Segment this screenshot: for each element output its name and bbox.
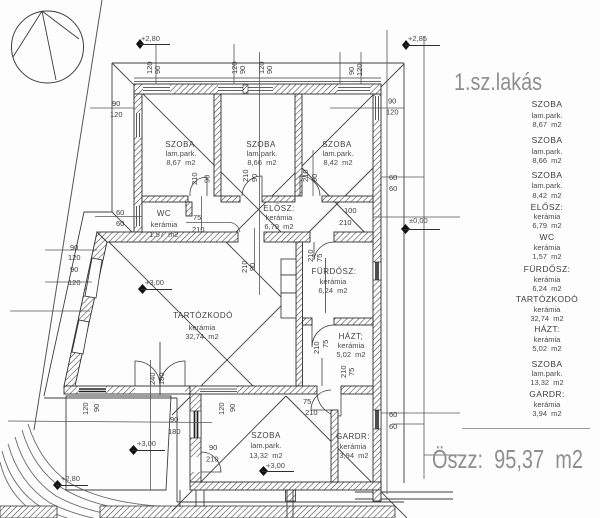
svg-text:+3,00: +3,00 bbox=[137, 439, 156, 448]
svg-text:90: 90 bbox=[388, 97, 396, 106]
svg-text:FÜRDŐSZ:: FÜRDŐSZ: bbox=[524, 264, 571, 274]
svg-text:120: 120 bbox=[355, 63, 364, 76]
svg-text:TARTÓZKODÓ: TARTÓZKODÓ bbox=[516, 294, 578, 304]
svg-text:8,66 m2: 8,66 m2 bbox=[247, 158, 276, 167]
svg-text:±0,00: ±0,00 bbox=[409, 216, 428, 225]
svg-text:75: 75 bbox=[303, 397, 311, 406]
svg-text:90: 90 bbox=[203, 175, 212, 183]
svg-text:WC: WC bbox=[540, 232, 555, 242]
svg-text:8,66 m2: 8,66 m2 bbox=[532, 156, 561, 165]
svg-text:ELŐSZ:: ELŐSZ: bbox=[531, 202, 564, 212]
svg-text:120: 120 bbox=[217, 402, 226, 415]
svg-text:kerámia: kerámia bbox=[534, 400, 562, 409]
svg-text:90: 90 bbox=[209, 443, 217, 452]
svg-text:8,67 m2: 8,67 m2 bbox=[166, 158, 195, 167]
svg-text:90: 90 bbox=[170, 415, 178, 424]
svg-text:HÁZT;: HÁZT; bbox=[339, 332, 364, 341]
svg-text:180: 180 bbox=[168, 427, 181, 436]
svg-text:lam.park.: lam.park. bbox=[532, 111, 563, 120]
svg-text:1,57 m2: 1,57 m2 bbox=[532, 252, 561, 261]
svg-text:GARDR:: GARDR: bbox=[529, 389, 564, 399]
svg-text:kerámia: kerámia bbox=[534, 212, 562, 221]
svg-text:90: 90 bbox=[70, 265, 78, 274]
svg-text:lam.park.: lam.park. bbox=[532, 369, 563, 378]
svg-text:kerámia: kerámia bbox=[151, 220, 179, 229]
svg-text:1.sz.lakás: 1.sz.lakás bbox=[454, 69, 542, 96]
svg-text:kerámia: kerámia bbox=[534, 243, 562, 252]
svg-text:ELŐSZ:: ELŐSZ: bbox=[263, 204, 294, 213]
svg-text:210: 210 bbox=[306, 249, 315, 262]
svg-text:1,57 m2: 1,57 m2 bbox=[149, 230, 178, 239]
svg-text:3,94 m2: 3,94 m2 bbox=[532, 409, 561, 418]
svg-text:180: 180 bbox=[157, 372, 166, 385]
svg-text:210: 210 bbox=[339, 365, 348, 378]
svg-text:120: 120 bbox=[68, 253, 81, 262]
svg-text:90: 90 bbox=[70, 243, 78, 252]
svg-text:lam.park.: lam.park. bbox=[166, 149, 197, 158]
svg-text:SZOBA: SZOBA bbox=[532, 359, 563, 369]
svg-text:210: 210 bbox=[301, 169, 310, 182]
svg-text:60: 60 bbox=[389, 410, 397, 419]
svg-text:GARDR:: GARDR: bbox=[336, 432, 370, 441]
svg-text:HÁZT:: HÁZT: bbox=[534, 324, 560, 334]
svg-text:90: 90 bbox=[153, 66, 162, 74]
svg-text:210: 210 bbox=[312, 341, 321, 354]
svg-text:lam.park.: lam.park. bbox=[532, 147, 563, 156]
svg-text:210: 210 bbox=[190, 172, 199, 185]
svg-text:kerámia: kerámia bbox=[534, 335, 562, 344]
svg-text:120: 120 bbox=[68, 278, 81, 287]
svg-text:90: 90 bbox=[112, 99, 120, 108]
svg-text:13,32 m2: 13,32 m2 bbox=[530, 378, 563, 387]
svg-text:90: 90 bbox=[248, 263, 257, 271]
svg-text:60: 60 bbox=[389, 173, 397, 182]
svg-text:+2,80: +2,80 bbox=[61, 474, 80, 483]
svg-text:90: 90 bbox=[228, 404, 237, 412]
svg-text:13,32 m2: 13,32 m2 bbox=[249, 451, 282, 460]
svg-text:8,42 m2: 8,42 m2 bbox=[532, 191, 561, 200]
svg-text:kerámia: kerámia bbox=[338, 341, 366, 350]
svg-text:60: 60 bbox=[389, 422, 397, 431]
svg-text:kerámia: kerámia bbox=[266, 213, 294, 222]
svg-text:90: 90 bbox=[250, 174, 259, 182]
svg-text:SZOBA: SZOBA bbox=[322, 140, 352, 149]
svg-text:75: 75 bbox=[321, 340, 330, 348]
svg-text:SZOBA: SZOBA bbox=[165, 140, 195, 149]
svg-text:+2,80: +2,80 bbox=[141, 34, 160, 43]
svg-text:3,94 m2: 3,94 m2 bbox=[339, 451, 368, 460]
svg-text:SZOBA: SZOBA bbox=[532, 135, 563, 145]
svg-text:32,74 m2: 32,74 m2 bbox=[185, 332, 218, 341]
svg-text:5,02 m2: 5,02 m2 bbox=[336, 350, 365, 359]
svg-text:210: 210 bbox=[241, 169, 250, 182]
svg-text:SZOBA: SZOBA bbox=[246, 140, 276, 149]
svg-text:TARTÓZKODÓ: TARTÓZKODÓ bbox=[173, 311, 233, 320]
svg-text:SZOBA: SZOBA bbox=[251, 431, 281, 440]
svg-text:lam.park.: lam.park. bbox=[251, 441, 282, 450]
svg-text:kerámia: kerámia bbox=[534, 275, 562, 284]
svg-text:210: 210 bbox=[206, 455, 219, 464]
svg-text:90: 90 bbox=[310, 174, 319, 182]
svg-text:6,79 m2: 6,79 m2 bbox=[532, 221, 561, 230]
svg-text:kerámia: kerámia bbox=[340, 442, 368, 451]
svg-text:+3,00: +3,00 bbox=[145, 278, 164, 287]
svg-text:6,24 m2: 6,24 m2 bbox=[532, 284, 561, 293]
svg-text:60: 60 bbox=[116, 208, 124, 217]
svg-text:210: 210 bbox=[192, 225, 205, 234]
svg-text:SZOBA: SZOBA bbox=[532, 99, 563, 109]
svg-text:5,02 m2: 5,02 m2 bbox=[532, 344, 561, 353]
svg-text:90: 90 bbox=[92, 404, 101, 412]
svg-text:240: 240 bbox=[148, 372, 157, 385]
svg-text:120: 120 bbox=[110, 110, 123, 119]
svg-text:6,79 m2: 6,79 m2 bbox=[264, 222, 293, 231]
svg-text:kerámia: kerámia bbox=[320, 277, 348, 286]
svg-text:FÜRDŐSZ:: FÜRDŐSZ: bbox=[312, 267, 357, 276]
svg-text:SZOBA: SZOBA bbox=[532, 170, 563, 180]
svg-text:kerámia: kerámia bbox=[534, 305, 562, 314]
svg-text:6,24 m2: 6,24 m2 bbox=[318, 286, 347, 295]
svg-text:75: 75 bbox=[193, 213, 201, 222]
svg-text:+2,85: +2,85 bbox=[408, 34, 427, 43]
svg-text:120: 120 bbox=[386, 108, 399, 117]
svg-text:lam.park.: lam.park. bbox=[532, 181, 563, 190]
svg-text:90: 90 bbox=[238, 66, 247, 74]
svg-text:60: 60 bbox=[389, 184, 397, 193]
svg-text:+3,00: +3,00 bbox=[266, 461, 285, 470]
svg-text:210: 210 bbox=[339, 218, 352, 227]
svg-text:100: 100 bbox=[344, 206, 357, 215]
svg-text:kerámia: kerámia bbox=[189, 323, 217, 332]
svg-text:Öszz: 95,37 m2: Öszz: 95,37 m2 bbox=[432, 444, 583, 474]
svg-text:lam.park.: lam.park. bbox=[323, 149, 354, 158]
svg-text:120: 120 bbox=[81, 402, 90, 415]
svg-text:210: 210 bbox=[305, 408, 318, 417]
svg-text:8,42 m2: 8,42 m2 bbox=[323, 158, 352, 167]
svg-text:60: 60 bbox=[116, 219, 124, 228]
svg-text:8,67 m2: 8,67 m2 bbox=[532, 120, 561, 129]
svg-text:32,74 m2: 32,74 m2 bbox=[530, 314, 563, 323]
svg-text:90: 90 bbox=[265, 66, 274, 74]
svg-text:lam.park.: lam.park. bbox=[247, 149, 278, 158]
svg-text:75: 75 bbox=[347, 368, 356, 376]
svg-text:75: 75 bbox=[315, 254, 324, 262]
svg-text:WC: WC bbox=[157, 209, 171, 218]
